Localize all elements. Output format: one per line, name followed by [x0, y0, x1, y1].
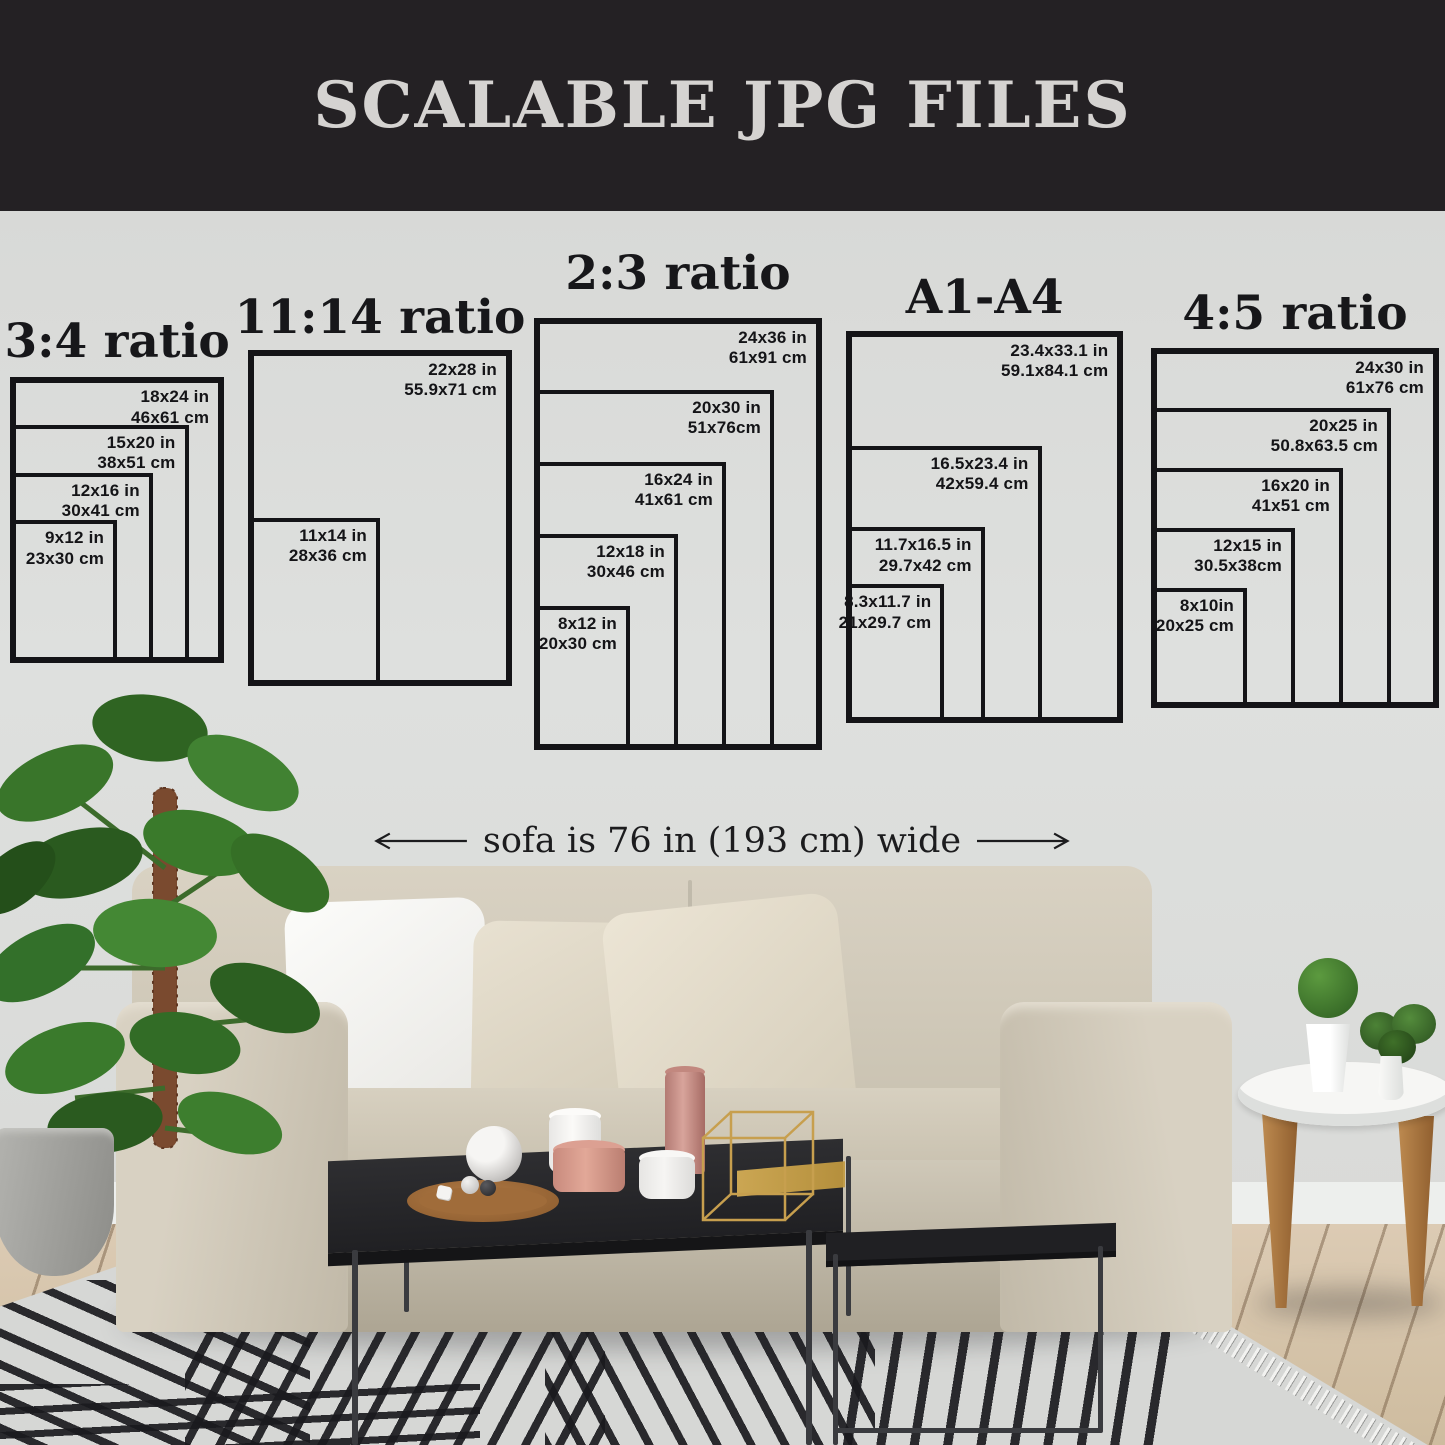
- nesting-table-leg: [1098, 1246, 1103, 1431]
- size-cm: 30.5x38cm: [1194, 556, 1282, 576]
- small-marble-ball: [461, 1176, 479, 1194]
- nesting-table-leg: [833, 1254, 838, 1445]
- bouquet-vase: [1378, 1056, 1404, 1100]
- size-inches: 16x24 in: [635, 470, 713, 490]
- size-cm: 41x61 cm: [635, 490, 713, 510]
- gold-wire-cube: [693, 1106, 817, 1224]
- sofa-width-annotation: sofa is 76 in (193 cm) wide: [372, 812, 1072, 870]
- pink-box: [553, 1148, 625, 1192]
- size-cm: 20x30 cm: [539, 634, 617, 654]
- size-label: 18x24 in46x61 cm: [131, 387, 209, 428]
- size-inches: 15x20 in: [97, 433, 175, 453]
- size-box: 8x10in20x25 cm: [1151, 588, 1247, 708]
- size-inches: 23.4x33.1 in: [1001, 341, 1108, 361]
- ratio-group: 4:5 ratio24x30 in61x76 cm20x25 in50.8x63…: [1151, 348, 1439, 708]
- size-inches: 9x12 in: [26, 528, 104, 548]
- size-inches: 12x15 in: [1194, 536, 1282, 556]
- size-inches: 12x16 in: [62, 481, 140, 501]
- topiary-plant: [1298, 958, 1358, 1018]
- size-cm: 23x30 cm: [26, 549, 104, 569]
- size-label: 24x30 in61x76 cm: [1346, 358, 1424, 399]
- size-inches: 18x24 in: [131, 387, 209, 407]
- size-cm: 55.9x71 cm: [404, 380, 497, 400]
- size-cm: 61x91 cm: [729, 348, 807, 368]
- ratio-group-title: 3:4 ratio: [4, 314, 229, 369]
- size-box: 8x12 in20x30 cm: [534, 606, 630, 750]
- size-label: 11.7x16.5 in29.7x42 cm: [875, 535, 972, 576]
- size-box: 8.3x11.7 in21x29.7 cm: [846, 584, 944, 723]
- size-cm: 21x29.7 cm: [839, 613, 932, 633]
- size-inches: 8x10in: [1156, 596, 1234, 616]
- left-arrow-icon: [372, 828, 467, 854]
- size-label: 23.4x33.1 in59.1x84.1 cm: [1001, 341, 1108, 382]
- sofa-right-arm: [1000, 1002, 1232, 1332]
- plant-pot: [0, 1128, 114, 1276]
- size-label: 24x36 in61x91 cm: [729, 328, 807, 369]
- marble-sphere: [466, 1126, 522, 1182]
- size-label: 8x12 in20x30 cm: [539, 614, 617, 655]
- size-inches: 16x20 in: [1252, 476, 1330, 496]
- ratio-group: 11:14 ratio22x28 in55.9x71 cm11x14 in28x…: [248, 350, 512, 686]
- size-inches: 11x14 in: [289, 526, 367, 546]
- size-label: 20x30 in51x76cm: [688, 398, 761, 439]
- ratio-group-title: A1-A4: [906, 270, 1064, 325]
- size-cm: 51x76cm: [688, 418, 761, 438]
- size-cm: 30x41 cm: [62, 501, 140, 521]
- mockup-scene: SCALABLE JPG FILES 3:4 ratio18x24 in46x6…: [0, 0, 1445, 1445]
- size-label: 9x12 in23x30 cm: [26, 528, 104, 569]
- size-label: 8.3x11.7 in21x29.7 cm: [839, 592, 932, 633]
- size-label: 22x28 in55.9x71 cm: [404, 360, 497, 401]
- rug-stripe-patch: [0, 1384, 480, 1445]
- ratio-group: 3:4 ratio18x24 in46x61 cm15x20 in38x51 c…: [10, 377, 224, 663]
- size-label: 16.5x23.4 in42x59.4 cm: [931, 454, 1029, 495]
- size-cm: 28x36 cm: [289, 546, 367, 566]
- size-inches: 8x12 in: [539, 614, 617, 634]
- size-cm: 50.8x63.5 cm: [1271, 436, 1378, 456]
- size-inches: 24x30 in: [1346, 358, 1424, 378]
- size-label: 12x15 in30.5x38cm: [1194, 536, 1282, 577]
- size-label: 11x14 in28x36 cm: [289, 526, 367, 567]
- size-cm: 41x51 cm: [1252, 496, 1330, 516]
- size-inches: 8.3x11.7 in: [839, 592, 932, 612]
- nesting-table-runner: [833, 1428, 1103, 1433]
- size-label: 16x24 in41x61 cm: [635, 470, 713, 511]
- white-jar: [639, 1157, 695, 1199]
- size-label: 16x20 in41x51 cm: [1252, 476, 1330, 517]
- size-inches: 24x36 in: [729, 328, 807, 348]
- size-cm: 59.1x84.1 cm: [1001, 361, 1108, 381]
- size-inches: 16.5x23.4 in: [931, 454, 1029, 474]
- size-inches: 22x28 in: [404, 360, 497, 380]
- size-cm: 38x51 cm: [97, 453, 175, 473]
- sofa-width-text: sofa is 76 in (193 cm) wide: [483, 821, 961, 861]
- size-box: 9x12 in23x30 cm: [10, 520, 117, 663]
- size-label: 8x10in20x25 cm: [1156, 596, 1234, 637]
- size-inches: 20x25 in: [1271, 416, 1378, 436]
- right-arrow-icon: [977, 828, 1072, 854]
- ratio-group: A1-A423.4x33.1 in59.1x84.1 cm16.5x23.4 i…: [846, 331, 1123, 723]
- size-cm: 30x46 cm: [587, 562, 665, 582]
- size-label: 15x20 in38x51 cm: [97, 433, 175, 474]
- size-inches: 11.7x16.5 in: [875, 535, 972, 555]
- dice: [436, 1185, 452, 1201]
- size-label: 12x16 in30x41 cm: [62, 481, 140, 522]
- size-cm: 61x76 cm: [1346, 378, 1424, 398]
- black-ball: [480, 1180, 496, 1196]
- coffee-table-leg: [806, 1230, 812, 1445]
- size-box: 11x14 in28x36 cm: [248, 518, 380, 686]
- size-label: 20x25 in50.8x63.5 cm: [1271, 416, 1378, 457]
- size-label: 12x18 in30x46 cm: [587, 542, 665, 583]
- ratio-group-title: 2:3 ratio: [565, 246, 790, 301]
- size-cm: 42x59.4 cm: [931, 474, 1029, 494]
- coffee-table-leg: [352, 1250, 358, 1445]
- size-cm: 20x25 cm: [1156, 616, 1234, 636]
- ratio-group-title: 4:5 ratio: [1182, 286, 1407, 341]
- ratio-group-title: 11:14 ratio: [235, 290, 526, 345]
- size-inches: 12x18 in: [587, 542, 665, 562]
- monstera-plant: [0, 668, 350, 1168]
- size-cm: 29.7x42 cm: [875, 556, 972, 576]
- ratio-group: 2:3 ratio24x36 in61x91 cm20x30 in51x76cm…: [534, 318, 822, 750]
- size-inches: 20x30 in: [688, 398, 761, 418]
